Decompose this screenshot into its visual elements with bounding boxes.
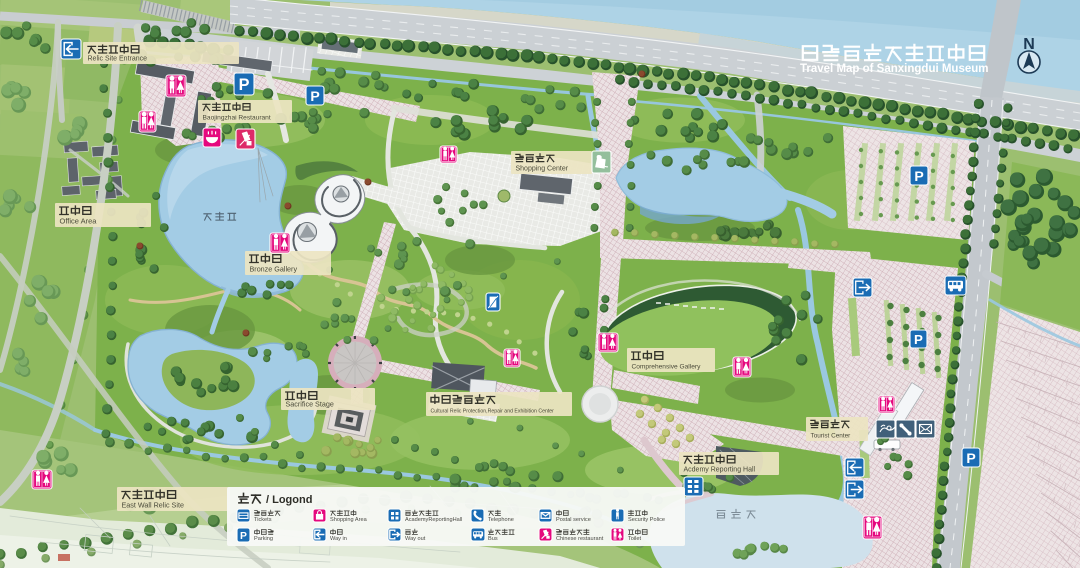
svg-text:Office Area: Office Area (60, 217, 98, 226)
svg-text:Shopping Area: Shopping Area (330, 517, 368, 523)
svg-text:Shopping Center: Shopping Center (516, 166, 569, 173)
svg-text:East Wall Relic Site: East Wall Relic Site (122, 501, 184, 510)
svg-text:Parking: Parking (254, 536, 273, 542)
svg-text:Chinese restaurant: Chinese restaurant (556, 536, 604, 542)
svg-text:Bus: Bus (488, 536, 498, 542)
svg-text:P: P (240, 531, 247, 542)
svg-text:Acdemy Reporting Hall: Acdemy Reporting Hall (684, 467, 756, 474)
svg-text:Way in: Way in (330, 536, 347, 542)
svg-text:Comprehensive Gallery: Comprehensive Gallery (632, 364, 702, 371)
svg-text:P: P (914, 168, 923, 184)
svg-text:P: P (914, 332, 923, 347)
svg-text:P: P (239, 76, 250, 94)
svg-text:Tourist Center: Tourist Center (811, 433, 852, 440)
svg-text:Relic Site Entrance: Relic Site Entrance (88, 56, 148, 63)
svg-text:Bronze Gallery: Bronze Gallery (250, 265, 298, 274)
svg-text:Travel Map of Sanxingdui Museu: Travel Map of Sanxingdui Museum (800, 63, 989, 75)
svg-text:AcademyReportingHall: AcademyReportingHall (405, 517, 462, 523)
svg-text:Baojingzhai Restaurant: Baojingzhai Restaurant (203, 115, 271, 122)
svg-text:Way out: Way out (405, 536, 426, 542)
svg-text:Toilet: Toilet (628, 536, 642, 542)
svg-text:Sacrifice Stage: Sacrifice Stage (286, 400, 334, 409)
svg-text:Cultural Relic Protection,Repa: Cultural Relic Protection,Repair and Exh… (431, 409, 555, 415)
svg-text:Security Police: Security Police (628, 517, 665, 523)
svg-text:P: P (310, 88, 319, 104)
svg-text:Tickets: Tickets (254, 517, 272, 523)
svg-text:/ Logond: / Logond (266, 494, 312, 506)
svg-text:Postal service: Postal service (556, 517, 591, 523)
svg-text:P: P (966, 450, 975, 466)
svg-text:Telephone: Telephone (488, 517, 514, 523)
